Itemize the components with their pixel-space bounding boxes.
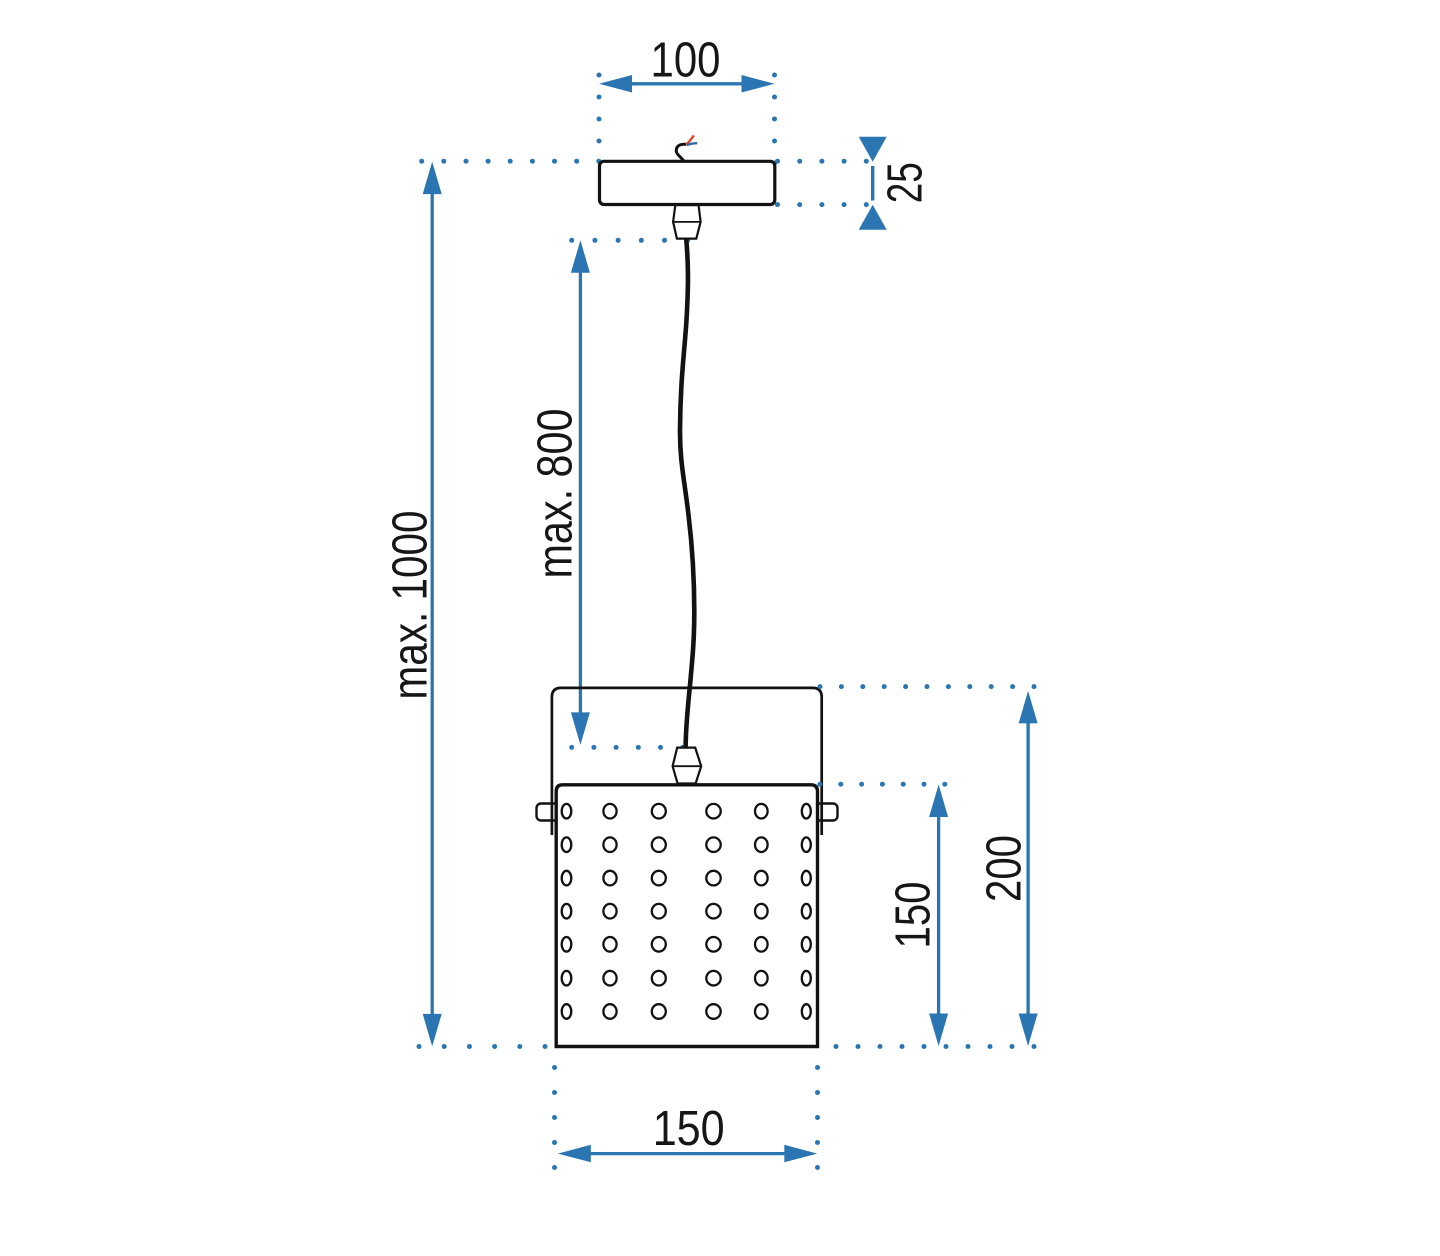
svg-text:25: 25	[879, 162, 933, 203]
svg-text:200: 200	[978, 835, 1032, 902]
svg-text:max. 1000: max. 1000	[384, 511, 438, 700]
svg-text:150: 150	[887, 882, 941, 949]
svg-text:150: 150	[653, 1102, 725, 1156]
svg-text:100: 100	[651, 34, 721, 88]
svg-text:max. 800: max. 800	[529, 409, 583, 579]
